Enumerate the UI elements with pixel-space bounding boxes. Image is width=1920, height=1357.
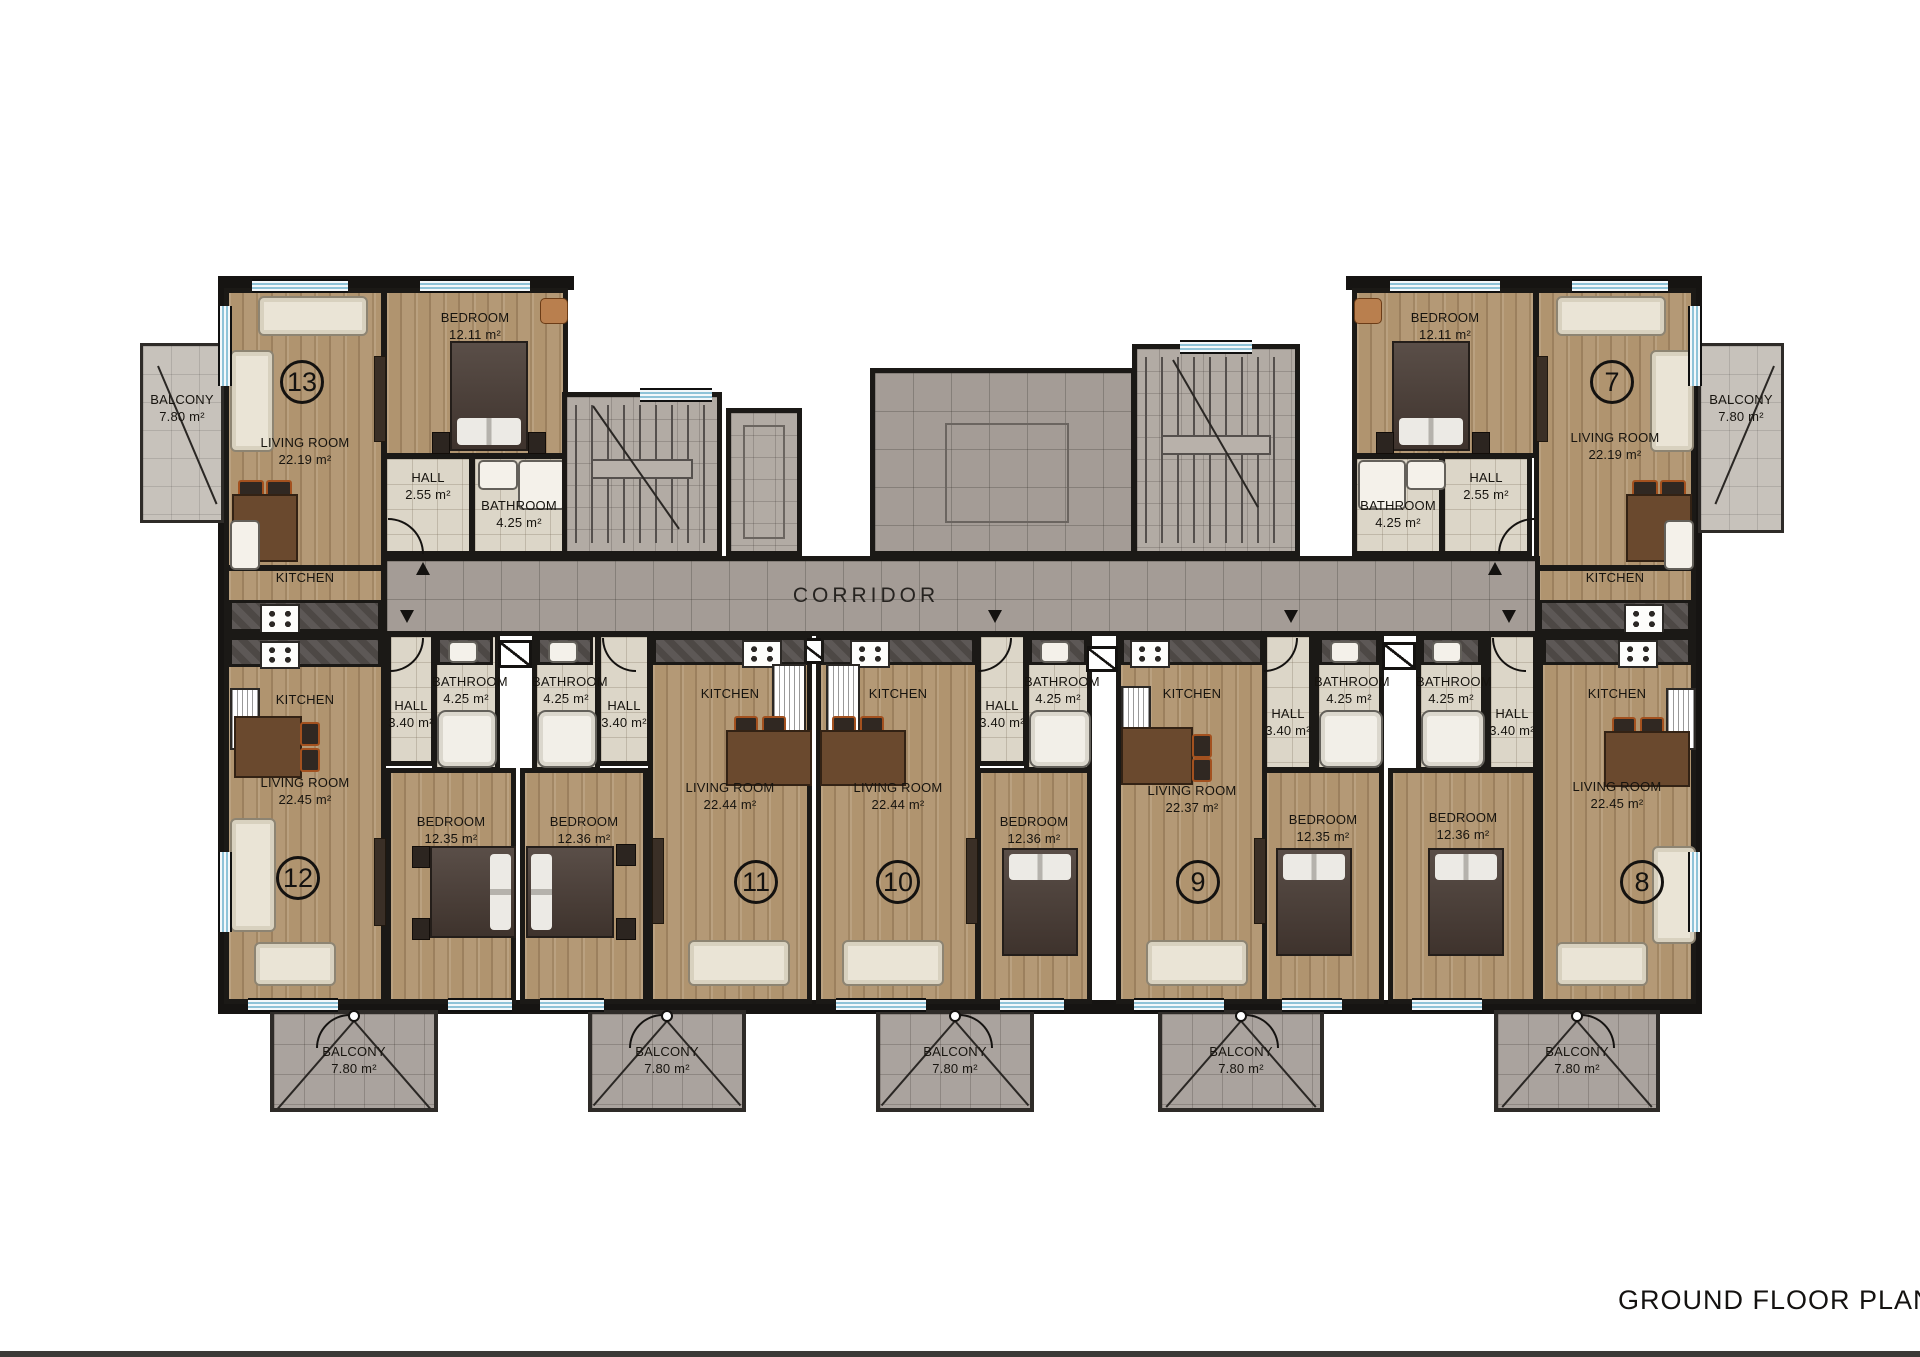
dining-table — [726, 730, 812, 786]
room-name: LIVING ROOM — [224, 775, 386, 792]
room-name: BALCONY — [1158, 1044, 1324, 1061]
room-name: KITCHEN — [1538, 686, 1696, 703]
staircase-right — [1132, 344, 1300, 556]
room-name: BALCONY — [1494, 1044, 1660, 1061]
window — [248, 998, 338, 1012]
corridor — [382, 556, 1540, 636]
bathtub — [1319, 710, 1383, 768]
room-name: HALL — [1486, 706, 1538, 723]
room-name: HALL — [382, 470, 474, 487]
chair — [1192, 734, 1212, 758]
stove — [260, 641, 300, 669]
room-name: BALCONY — [270, 1044, 438, 1061]
room-area: 22.19 m² — [1534, 447, 1696, 464]
room-label-bedroom: BEDROOM12.11 m² — [1352, 310, 1538, 344]
sofa — [1146, 940, 1248, 986]
room-area: 7.80 m² — [270, 1061, 438, 1078]
nightstand — [412, 918, 430, 940]
room-name: BATHROOM — [1024, 674, 1092, 691]
window — [448, 998, 512, 1012]
room-name: LIVING ROOM — [1116, 783, 1268, 800]
room-label-living: LIVING ROOM22.44 m² — [816, 780, 980, 814]
direction-arrow-down — [988, 610, 1002, 623]
chair — [300, 748, 320, 772]
window — [540, 998, 604, 1012]
room-name: BEDROOM — [382, 310, 568, 327]
room-label-kitchen: KITCHEN — [648, 686, 812, 703]
room-area: 7.80 m² — [140, 409, 224, 426]
room-area: 3.40 m² — [596, 715, 652, 732]
tv-stand — [374, 356, 386, 442]
room-name: LIVING ROOM — [816, 780, 980, 797]
nightstand — [1376, 432, 1394, 454]
room-label-hall: HALL3.40 m² — [976, 698, 1028, 732]
bathtub — [1421, 710, 1485, 768]
room-label-bathroom: BATHROOM4.25 m² — [432, 674, 500, 708]
room-name: KITCHEN — [648, 686, 812, 703]
sofa — [842, 940, 944, 986]
room-name: HALL — [976, 698, 1028, 715]
room-name: KITCHEN — [224, 570, 386, 587]
room-label-balcony: BALCONY7.80 m² — [140, 392, 224, 426]
room-area: 22.44 m² — [816, 797, 980, 814]
lobby-right — [870, 368, 1136, 556]
room-label-bedroom: BEDROOM12.35 m² — [1262, 812, 1384, 846]
window — [1134, 998, 1224, 1012]
room-area: 12.11 m² — [1352, 327, 1538, 344]
room-name: BEDROOM — [1262, 812, 1384, 829]
room-name: HALL — [596, 698, 652, 715]
room-area: 22.45 m² — [224, 792, 386, 809]
stove — [1624, 604, 1664, 634]
room-area: 7.80 m² — [588, 1061, 746, 1078]
room-name: BALCONY — [588, 1044, 746, 1061]
window — [1282, 998, 1342, 1012]
room-name: BATHROOM — [532, 674, 600, 691]
room-name: HALL — [1440, 470, 1532, 487]
window — [218, 852, 232, 932]
kitchen-counter — [229, 600, 381, 632]
room-name: KITCHEN — [1534, 570, 1696, 587]
window — [1390, 279, 1500, 293]
tv-stand — [1254, 838, 1266, 924]
room-label-kitchen: KITCHEN — [1116, 686, 1268, 703]
room-area: 12.35 m² — [1262, 829, 1384, 846]
window — [836, 998, 926, 1012]
service-shaft — [1086, 646, 1118, 672]
room-label-balcony: BALCONY7.80 m² — [1494, 1044, 1660, 1078]
kitchen-counter — [1543, 637, 1691, 665]
elevator-left — [726, 408, 802, 556]
room-name: KITCHEN — [224, 692, 386, 709]
bathtub — [537, 710, 597, 768]
bathtub — [1029, 710, 1091, 768]
room-label-living: LIVING ROOM22.45 m² — [1538, 779, 1696, 813]
room-name: KITCHEN — [816, 686, 980, 703]
room-label-bathroom: BATHROOM4.25 m² — [1352, 498, 1444, 532]
room-area: 3.40 m² — [1486, 723, 1538, 740]
washbasin — [1330, 641, 1360, 663]
room-area: 4.25 m² — [532, 691, 600, 708]
room-name: BEDROOM — [1352, 310, 1538, 327]
room-label-bedroom: BEDROOM12.36 m² — [976, 814, 1092, 848]
room-label-hall: HALL3.40 m² — [1486, 706, 1538, 740]
room-area: 2.55 m² — [382, 487, 474, 504]
room-label-bathroom: BATHROOM4.25 m² — [1314, 674, 1384, 708]
room-label-kitchen: KITCHEN — [1538, 686, 1696, 703]
room-name: BEDROOM — [1388, 810, 1538, 827]
room-label-balcony: BALCONY7.80 m² — [588, 1044, 746, 1078]
room-area: 7.80 m² — [1494, 1061, 1660, 1078]
room-name: BEDROOM — [386, 814, 516, 831]
room-label-living: LIVING ROOM22.45 m² — [224, 775, 386, 809]
apartment-number-12: 12 — [276, 856, 320, 900]
window — [1180, 340, 1252, 354]
room-label-kitchen: KITCHEN — [1534, 570, 1696, 587]
room-area: 12.36 m² — [520, 831, 648, 848]
room-name: BALCONY — [1698, 392, 1784, 409]
room-label-balcony: BALCONY7.80 m² — [1698, 392, 1784, 426]
room-area: 4.25 m² — [1024, 691, 1092, 708]
chair — [300, 722, 320, 746]
room-name: BATHROOM — [1416, 674, 1486, 691]
dining-table — [234, 716, 302, 778]
room-area: 4.25 m² — [1416, 691, 1486, 708]
direction-arrow-down — [1502, 610, 1516, 623]
direction-arrow-down — [400, 610, 414, 623]
chair — [1192, 758, 1212, 782]
kitchen-counter — [229, 637, 381, 667]
nightstand — [432, 432, 450, 454]
room-area: 2.55 m² — [1440, 487, 1532, 504]
room-name: LIVING ROOM — [224, 435, 386, 452]
room-label-bathroom: BATHROOM4.25 m² — [470, 498, 568, 532]
staircase-left — [562, 392, 722, 556]
bed — [1392, 341, 1470, 451]
direction-arrow-up — [1488, 562, 1502, 575]
room-area: 7.80 m² — [876, 1061, 1034, 1078]
room-area: 12.11 m² — [382, 327, 568, 344]
room-label-bathroom: BATHROOM4.25 m² — [1416, 674, 1486, 708]
room-label-kitchen: KITCHEN — [816, 686, 980, 703]
room-name: BATHROOM — [1352, 498, 1444, 515]
nightstand — [616, 918, 636, 940]
room-label-bedroom: BEDROOM12.35 m² — [386, 814, 516, 848]
room-label-hall: HALL2.55 m² — [1440, 470, 1532, 504]
washbasin — [1040, 641, 1070, 663]
room-area: 22.44 m² — [648, 797, 812, 814]
kitchen-sink — [230, 520, 260, 570]
bed — [450, 341, 528, 451]
sofa — [1556, 942, 1648, 986]
sheet-border — [0, 1351, 1920, 1357]
stove — [1618, 640, 1658, 668]
corridor-label: CORRIDOR — [790, 584, 942, 608]
room-area: 12.36 m² — [1388, 827, 1538, 844]
apartment-number-11: 11 — [734, 860, 778, 904]
service-shaft — [1382, 642, 1416, 670]
room-label-living: LIVING ROOM22.37 m² — [1116, 783, 1268, 817]
room-name: LIVING ROOM — [1538, 779, 1696, 796]
stove — [1130, 640, 1170, 668]
apartment-number-10: 10 — [876, 860, 920, 904]
room-label-hall: HALL3.40 m² — [596, 698, 652, 732]
room-area: 4.25 m² — [470, 515, 568, 532]
apartment-number-8: 8 — [1620, 860, 1664, 904]
room-area: 4.25 m² — [1314, 691, 1384, 708]
room-label-bathroom: BATHROOM4.25 m² — [1024, 674, 1092, 708]
room-area: 7.80 m² — [1698, 409, 1784, 426]
room-name: HALL — [386, 698, 436, 715]
nightstand — [412, 846, 430, 868]
window — [1688, 306, 1702, 386]
room-area: 12.35 m² — [386, 831, 516, 848]
room-label-balcony: BALCONY7.80 m² — [876, 1044, 1034, 1078]
room-label-living: LIVING ROOM22.44 m² — [648, 780, 812, 814]
dining-table — [1121, 727, 1193, 785]
tv-stand — [374, 838, 386, 926]
room-label-hall: HALL3.40 m² — [386, 698, 436, 732]
room-label-kitchen: KITCHEN — [224, 692, 386, 709]
bed — [1428, 848, 1504, 956]
room-label-hall: HALL3.40 m² — [1262, 706, 1314, 740]
nightstand — [528, 432, 546, 454]
window — [1688, 852, 1702, 932]
bed — [1276, 848, 1352, 956]
window — [640, 388, 712, 402]
sofa — [254, 942, 336, 986]
kitchen-counter — [821, 637, 975, 665]
nightstand — [1472, 432, 1490, 454]
washbasin — [548, 641, 578, 663]
apartment-number-13: 13 — [280, 360, 324, 404]
lobby-inner — [945, 423, 1069, 523]
room-name: KITCHEN — [1116, 686, 1268, 703]
room-name: LIVING ROOM — [648, 780, 812, 797]
sofa — [230, 818, 276, 932]
floor-plan: 13 7 12 11 10 9 8 BALCONY7.80 m² LIVING … — [0, 0, 1920, 1357]
window — [1000, 998, 1064, 1012]
room-name: BATHROOM — [432, 674, 500, 691]
room-label-bedroom: BEDROOM12.36 m² — [1388, 810, 1538, 844]
bed — [1002, 848, 1078, 956]
room-name: HALL — [1262, 706, 1314, 723]
room-area: 22.37 m² — [1116, 800, 1268, 817]
room-area: 3.40 m² — [386, 715, 436, 732]
sofa — [258, 296, 368, 336]
room-area: 3.40 m² — [976, 715, 1028, 732]
room-area: 4.25 m² — [1352, 515, 1444, 532]
sofa — [1556, 296, 1666, 336]
window — [252, 279, 348, 293]
room-area: 7.80 m² — [1158, 1061, 1324, 1078]
room-name: BATHROOM — [1314, 674, 1384, 691]
bed — [430, 846, 516, 938]
washbasin — [478, 460, 518, 490]
washbasin — [1432, 641, 1462, 663]
room-label-living: LIVING ROOM22.19 m² — [224, 435, 386, 469]
room-label-living: LIVING ROOM22.19 m² — [1534, 430, 1696, 464]
sofa — [688, 940, 790, 986]
room-name: BEDROOM — [520, 814, 648, 831]
room-label-bedroom: BEDROOM12.11 m² — [382, 310, 568, 344]
room-area: 3.40 m² — [1262, 723, 1314, 740]
room-label-balcony: BALCONY7.80 m² — [1158, 1044, 1324, 1078]
room-name: BEDROOM — [976, 814, 1092, 831]
window — [420, 279, 530, 293]
stove — [260, 604, 300, 634]
room-label-hall: HALL2.55 m² — [382, 470, 474, 504]
elevator-cab — [743, 425, 785, 539]
direction-arrow-down — [1284, 610, 1298, 623]
room-label-bathroom: BATHROOM4.25 m² — [532, 674, 600, 708]
plan-title: GROUND FLOOR PLAN — [1618, 1286, 1918, 1316]
kitchen-sink — [1664, 520, 1694, 570]
apartment-number-7: 7 — [1590, 360, 1634, 404]
apartment-number-9: 9 — [1176, 860, 1220, 904]
bed — [526, 846, 614, 938]
window — [1572, 279, 1668, 293]
room-area: 22.19 m² — [224, 452, 386, 469]
room-area: 4.25 m² — [432, 691, 500, 708]
direction-arrow-up — [416, 562, 430, 575]
washbasin — [448, 641, 478, 663]
tv-stand — [966, 838, 978, 924]
dining-table — [820, 730, 906, 786]
room-area: 12.36 m² — [976, 831, 1092, 848]
room-name: BALCONY — [876, 1044, 1034, 1061]
room-name: LIVING ROOM — [1534, 430, 1696, 447]
room-label-balcony: BALCONY7.80 m² — [270, 1044, 438, 1078]
window — [218, 306, 232, 386]
tv-stand — [652, 838, 664, 924]
window — [1412, 998, 1482, 1012]
service-shaft — [498, 640, 532, 668]
bathtub — [437, 710, 497, 768]
room-label-kitchen: KITCHEN — [224, 570, 386, 587]
room-label-bedroom: BEDROOM12.36 m² — [520, 814, 648, 848]
room-name: BALCONY — [140, 392, 224, 409]
kitchen-counter — [1539, 600, 1691, 632]
kitchen-counter — [653, 637, 807, 665]
room-area: 22.45 m² — [1538, 796, 1696, 813]
room-name: BATHROOM — [470, 498, 568, 515]
